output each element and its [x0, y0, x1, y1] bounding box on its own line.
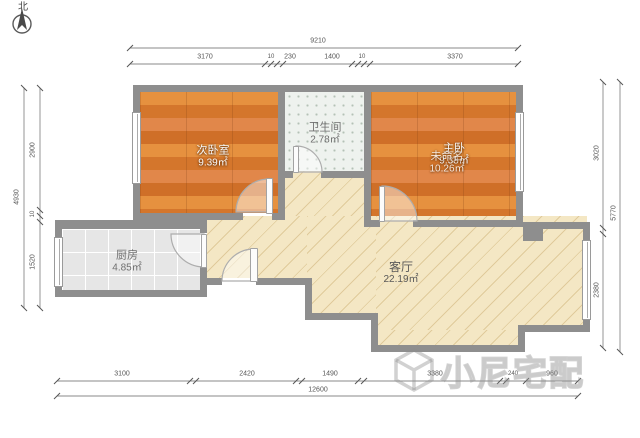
master-bedroom-alt-label: 未命名 10.26㎡ — [429, 150, 464, 175]
compass: 北 — [5, 0, 41, 46]
north-label: 北 — [18, 0, 28, 13]
room-area: 22.19㎡ — [383, 274, 418, 286]
dim-top-seg: 10 — [268, 54, 275, 60]
dim-right-seg: 2380 — [594, 282, 601, 298]
dim-top-seg: 3170 — [197, 54, 213, 61]
bathroom-door-arc — [296, 146, 322, 172]
dim-bottom-seg: 3380 — [427, 371, 443, 378]
dim-left-total: 4930 — [14, 189, 21, 205]
dim-bottom-total: 12600 — [308, 387, 327, 394]
room-area: 4.85㎡ — [112, 263, 141, 275]
room-name: 卫生间 — [309, 121, 342, 134]
bathroom-door-leaf — [293, 146, 299, 173]
dim-top-total: 9210 — [310, 38, 326, 45]
room-area: 9.39㎡ — [197, 158, 230, 170]
secondary-bedroom-door-leaf — [266, 178, 273, 214]
dim-right-seg: 3020 — [594, 145, 601, 161]
room-area: 10.26㎡ — [429, 164, 464, 176]
room-name: 客厅 — [383, 260, 418, 274]
dim-left-seg: 1520 — [30, 254, 37, 270]
dim-top-seg: 1400 — [324, 54, 340, 61]
room-area: 2.78㎡ — [309, 135, 342, 147]
dim-top-seg: 3370 — [447, 54, 463, 61]
kitchen-label: 厨房 4.85㎡ — [112, 249, 141, 274]
dim-top-seg: 230 — [284, 54, 296, 61]
kitchen-door-arc — [171, 234, 204, 267]
dim-bottom-seg: 240 — [508, 371, 518, 377]
dim-top-seg: 10 — [359, 54, 366, 60]
dimension-overlay — [0, 0, 640, 438]
dim-bottom-seg: 1490 — [322, 371, 338, 378]
bathroom-label: 卫生间 2.78㎡ — [309, 121, 342, 146]
master-bedroom-door-leaf — [379, 186, 385, 222]
room-name: 未命名 — [429, 150, 464, 163]
dim-right-total: 5770 — [611, 205, 618, 221]
dim-bottom-seg: 3100 — [114, 371, 130, 378]
living-room-label: 客厅 22.19㎡ — [383, 260, 418, 286]
floorplan-canvas: 次卧室 9.39㎡ 主卧 9.38㎡ 未命名 10.26㎡ 卫生间 2.78㎡ … — [0, 0, 640, 438]
dim-left-seg: 2900 — [30, 142, 37, 158]
entry-door-leaf — [250, 248, 258, 282]
room-name: 厨房 — [112, 249, 141, 262]
dim-left-seg: 10 — [30, 211, 36, 218]
room-name: 次卧室 — [197, 144, 230, 157]
dimension-ticks — [21, 45, 623, 399]
dim-bottom-seg: 2420 — [239, 371, 255, 378]
dim-bottom-seg: 960 — [546, 371, 558, 378]
master-bedroom-door-arc — [382, 186, 417, 221]
secondary-bedroom-door-arc — [236, 179, 269, 212]
kitchen-door-leaf — [201, 234, 207, 268]
secondary-bedroom-label: 次卧室 9.39㎡ — [197, 144, 230, 169]
